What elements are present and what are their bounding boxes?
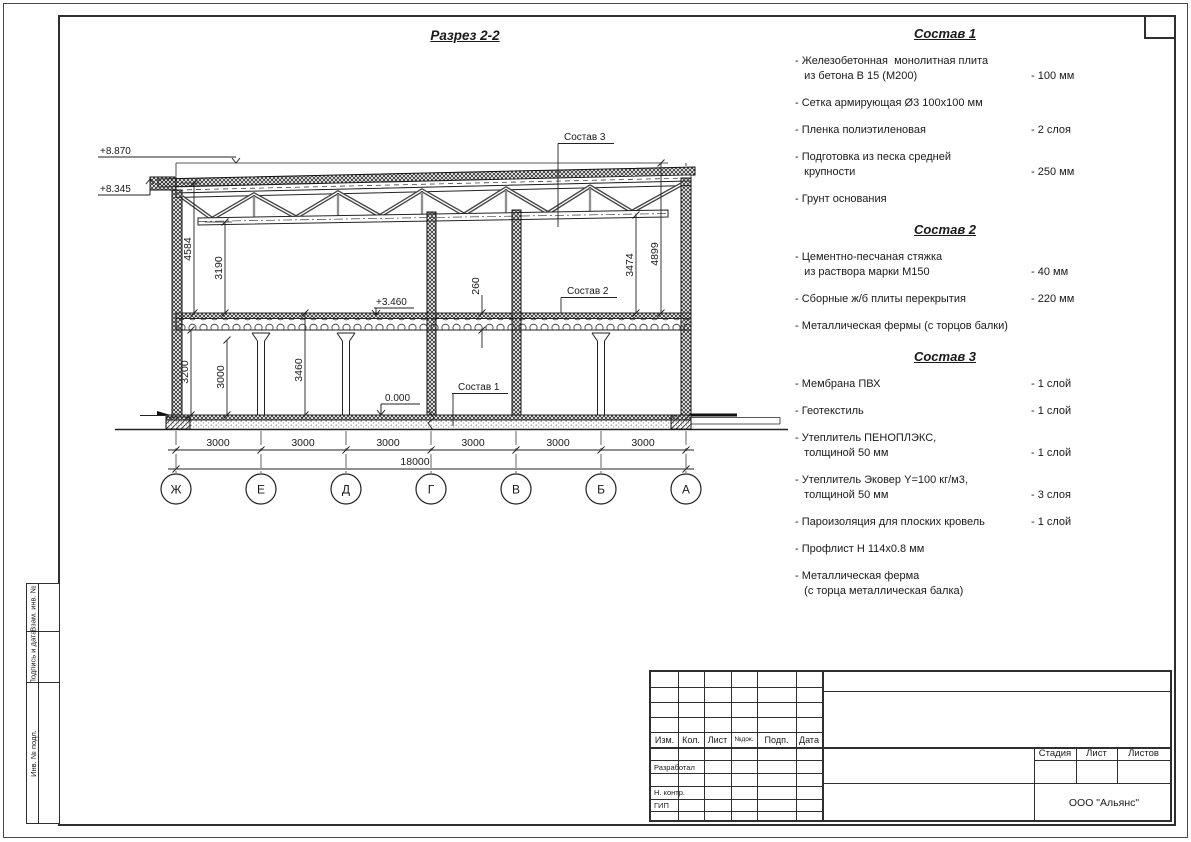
spec-item: - Металлическая ферма (с торца металличе… bbox=[795, 569, 1095, 599]
elevation-zero: 0.000 bbox=[385, 393, 410, 404]
axis-label-d: Д bbox=[342, 483, 350, 497]
dim-gf1: 3200 bbox=[179, 360, 191, 384]
tb-header-ndok: №док. bbox=[731, 732, 757, 747]
axis-label-g: Г bbox=[428, 483, 435, 497]
axis-label-a: А bbox=[682, 483, 690, 497]
tb-sheets: Листов bbox=[1117, 747, 1170, 760]
tb-sheet: Лист bbox=[1076, 747, 1117, 760]
spec-item: - Сборные ж/б плиты перекрытия- 220 мм bbox=[795, 292, 1095, 307]
tb-row-ncontr: Н. контр. bbox=[654, 788, 685, 797]
axis-label-zh: Ж bbox=[170, 483, 181, 497]
column-axis-g bbox=[427, 212, 436, 415]
sidebar-cell-inv-value bbox=[38, 682, 60, 824]
spec-panel: Состав 1 - Железобетонная монолитная пли… bbox=[795, 26, 1095, 611]
callout-sostav3: Состав 3 bbox=[564, 132, 606, 143]
dim-bay-6: 3000 bbox=[631, 437, 655, 449]
dim-gf2: 3000 bbox=[215, 365, 227, 389]
horizontal-dimensions: 3000 3000 3000 3000 3000 3000 18000 bbox=[168, 431, 694, 473]
spec-item: - Геотекстиль- 1 слой bbox=[795, 404, 1095, 419]
tb-row-developed: Разработал bbox=[654, 763, 695, 772]
dim-gf3: 3460 bbox=[293, 358, 305, 382]
tb-company: ООО "Альянс" bbox=[1034, 783, 1174, 822]
axis-bubbles: Ж Е Д Г В Б А bbox=[161, 474, 701, 504]
spec-item: - Грунт основания bbox=[795, 192, 1095, 207]
spec-item: - Цементно-песчаная стяжка из раствора м… bbox=[795, 250, 1095, 280]
dim-right-outer: 4899 bbox=[649, 242, 661, 266]
elevation-floor2: +3.460 bbox=[376, 297, 407, 308]
spec-item: - Сетка армирующая Ø3 100х100 мм bbox=[795, 96, 1095, 111]
sidebar-cell-podpis-value bbox=[38, 631, 60, 684]
spec-title-1: Состав 1 bbox=[795, 26, 1095, 41]
foundation-right bbox=[671, 415, 691, 429]
dim-left-outer: 4584 bbox=[182, 237, 194, 261]
dim-slab: 260 bbox=[470, 277, 482, 295]
spec-item: - Утеплитель ПЕНОПЛЭКС, толщиной 50 мм- … bbox=[795, 431, 1095, 461]
elevation-high: +8.870 bbox=[100, 146, 131, 157]
column-axis-v bbox=[512, 210, 521, 415]
spec-item: - Профлист Н 114х0.8 мм bbox=[795, 542, 1095, 557]
format-box bbox=[1144, 15, 1176, 39]
section-title: Разрез 2-2 bbox=[380, 28, 550, 43]
title-block: Изм. Кол. Лист №док. Подп. Дата Разработ… bbox=[649, 670, 1172, 822]
wall-axis-a bbox=[681, 178, 691, 415]
tb-header-data: Дата bbox=[796, 732, 822, 747]
drawing-sheet: { "drawing": { "title": "Разрез 2-2", "e… bbox=[0, 0, 1191, 842]
elevation-roof: +8.345 bbox=[100, 184, 131, 195]
spec-item: - Железобетонная монолитная плита из бет… bbox=[795, 54, 1095, 84]
spec-item: - Мембрана ПВХ- 1 слой bbox=[795, 377, 1095, 392]
dim-bay-2: 3000 bbox=[291, 437, 315, 449]
axis-label-b: Б bbox=[597, 483, 605, 497]
callout-sostav1: Состав 1 bbox=[458, 382, 500, 393]
tb-header-kol: Кол. bbox=[678, 732, 704, 747]
tb-header-podp: Подп. bbox=[757, 732, 796, 747]
tb-stage: Стадия bbox=[1034, 747, 1076, 760]
dim-bay-1: 3000 bbox=[206, 437, 230, 449]
foundation-left bbox=[166, 417, 190, 429]
tb-header-izm: Изм. bbox=[651, 732, 678, 747]
callout-sostav2: Состав 2 bbox=[567, 286, 609, 297]
dim-left-inner: 3190 bbox=[213, 256, 225, 280]
dim-right-inner: 3474 bbox=[624, 253, 636, 277]
dim-bay-3: 3000 bbox=[376, 437, 400, 449]
dim-bay-4: 3000 bbox=[461, 437, 485, 449]
section-drawing: +8.870 +8.345 +3.460 0.000 bbox=[55, 115, 800, 525]
tb-header-list: Лист bbox=[704, 732, 731, 747]
axis-label-v: В bbox=[512, 483, 520, 497]
dim-total: 18000 bbox=[400, 456, 429, 468]
spec-item: - Утеплитель Эковер Y=100 кг/м3, толщино… bbox=[795, 473, 1095, 503]
axis-label-e: Е bbox=[257, 483, 265, 497]
spec-item: - Металлическая фермы (с торцов балки) bbox=[795, 319, 1095, 334]
dim-bay-5: 3000 bbox=[546, 437, 570, 449]
spec-title-2: Состав 2 bbox=[795, 222, 1095, 237]
spec-item: - Подготовка из песка средней крупности-… bbox=[795, 150, 1095, 180]
tb-row-gip: ГИП bbox=[654, 801, 669, 810]
sidebar-cell-vzam-value bbox=[38, 583, 60, 633]
spec-item: - Пленка полиэтиленовая- 2 слоя bbox=[795, 123, 1095, 138]
spec-item: - Пароизоляция для плоских кровель- 1 сл… bbox=[795, 515, 1095, 530]
spec-title-3: Состав 3 bbox=[795, 349, 1095, 364]
